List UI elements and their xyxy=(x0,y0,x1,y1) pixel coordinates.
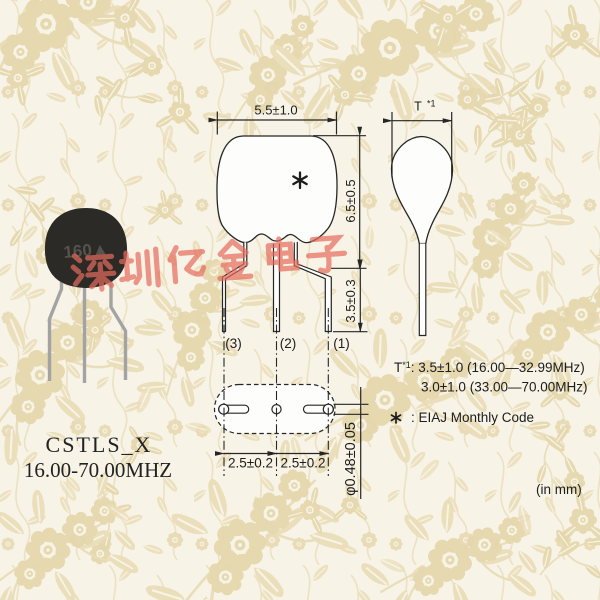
svg-text:T*1: 3.5±1.0 (16.00—32.99MHz): T*1: 3.5±1.0 (16.00—32.99MHz) xyxy=(394,360,585,375)
svg-text:(1): (1) xyxy=(333,336,350,351)
svg-text:CSTLS_X: CSTLS_X xyxy=(46,432,153,457)
svg-text:*1: *1 xyxy=(427,99,436,109)
svg-text:(in mm): (in mm) xyxy=(536,482,582,497)
svg-text:2.5±0.2: 2.5±0.2 xyxy=(228,456,273,471)
svg-text:3.5±0.3: 3.5±0.3 xyxy=(343,279,358,322)
svg-text:(3): (3) xyxy=(225,336,242,351)
svg-text:φ0.48±0.05: φ0.48±0.05 xyxy=(343,422,359,496)
svg-text:16.00-70.00MHZ: 16.00-70.00MHZ xyxy=(24,458,172,482)
svg-text:6.5±0.5: 6.5±0.5 xyxy=(343,179,358,222)
svg-text:T: T xyxy=(414,100,422,114)
svg-text:: EIAJ Monthly Code: : EIAJ Monthly Code xyxy=(411,410,534,425)
svg-text:3.0±1.0 (33.00—70.00MHz): 3.0±1.0 (33.00—70.00MHz) xyxy=(421,380,588,395)
svg-text:2.5±0.2: 2.5±0.2 xyxy=(281,456,326,471)
svg-text:5.5±1.0: 5.5±1.0 xyxy=(254,103,297,118)
svg-text:(2): (2) xyxy=(280,336,297,351)
